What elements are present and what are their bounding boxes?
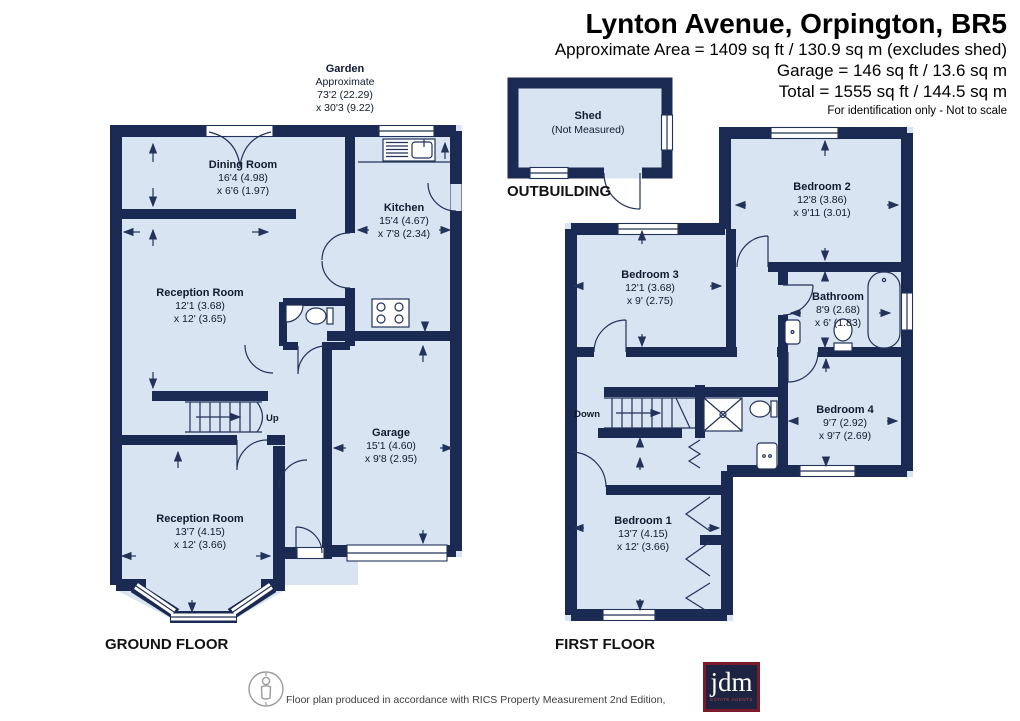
svg-text:Garden: Garden	[326, 63, 365, 75]
svg-text:15'1 (4.60): 15'1 (4.60)	[366, 440, 416, 452]
svg-text:x 12' (3.66): x 12' (3.66)	[174, 539, 226, 551]
svg-text:x 9' (2.75): x 9' (2.75)	[627, 295, 673, 307]
room-label: Reception Room	[156, 513, 244, 525]
room-garage: Garage 15'1 (4.60) x 9'8 (2.95)	[365, 427, 417, 465]
jdm-estate-agents-logo: jdm ESTATE AGENTS	[703, 662, 760, 712]
svg-text:13'7 (4.15): 13'7 (4.15)	[618, 528, 668, 540]
shower-room-toilet-icon	[750, 401, 777, 417]
room-label: Bedroom 4	[816, 404, 874, 416]
first-floor-plan: Down	[555, 127, 913, 653]
bathtub-icon	[868, 272, 900, 348]
garden-label: Garden Approximate 73'2 (22.29) x 30'3 (…	[316, 63, 375, 114]
svg-text:12'1 (3.68): 12'1 (3.68)	[625, 282, 675, 294]
svg-text:9'7 (2.92): 9'7 (2.92)	[823, 417, 867, 429]
svg-text:x 9'7 (2.69): x 9'7 (2.69)	[819, 430, 871, 442]
floorplan-page: Up	[0, 0, 1020, 721]
room-label: Kitchen	[384, 202, 425, 214]
svg-text:12'1 (3.68): 12'1 (3.68)	[175, 300, 225, 312]
shower-icon	[704, 398, 742, 431]
svg-text:x 7'8 (2.34): x 7'8 (2.34)	[378, 228, 430, 240]
hob-icon	[372, 299, 409, 327]
room-label: Bedroom 1	[614, 515, 671, 527]
ground-floor-plan: Up	[105, 63, 462, 653]
front-door	[297, 548, 324, 559]
total-line: Total = 1555 sq ft / 144.5 sq m	[555, 82, 1007, 103]
room-bedroom-3: Bedroom 3 12'1 (3.68) x 9' (2.75)	[621, 269, 678, 307]
svg-text:8'9 (2.68): 8'9 (2.68)	[816, 304, 860, 316]
area-line: Approximate Area = 1409 sq ft / 130.9 sq…	[555, 40, 1007, 61]
room-label: Reception Room	[156, 287, 244, 299]
bathroom-sink-icon	[785, 320, 800, 344]
svg-text:x 12' (3.65): x 12' (3.65)	[174, 313, 226, 325]
stairs-up-label: Up	[266, 413, 279, 424]
footer-line-1: Floor plan produced in accordance with R…	[286, 694, 761, 708]
room-bathroom: Bathroom 8'9 (2.68) x 6' (1.83)	[812, 291, 864, 329]
room-bedroom-2: Bedroom 2 12'8 (3.86) x 9'11 (3.01)	[793, 181, 850, 219]
svg-text:12'8 (3.86): 12'8 (3.86)	[797, 194, 847, 206]
room-label: Dining Room	[209, 159, 278, 171]
logo-text: jdm	[706, 667, 757, 697]
svg-text:x 9'8 (2.95): x 9'8 (2.95)	[365, 453, 417, 465]
room-label: Bathroom	[812, 291, 864, 303]
ground-floor-label: GROUND FLOOR	[105, 636, 228, 653]
shower-room-sink-icon	[757, 443, 777, 469]
header: Lynton Avenue, Orpington, BR5 Approximat…	[555, 8, 1007, 117]
room-label: Garage	[372, 427, 410, 439]
ground-floor-fill	[110, 125, 462, 618]
svg-text:x 30'3 (9.22): x 30'3 (9.22)	[316, 102, 374, 114]
svg-text:x 9'11 (3.01): x 9'11 (3.01)	[793, 207, 850, 219]
svg-text:x 12' (3.66): x 12' (3.66)	[617, 541, 669, 553]
outbuilding-label: OUTBUILDING	[507, 183, 611, 200]
room-bedroom-1: Bedroom 1 13'7 (4.15) x 12' (3.66)	[614, 515, 671, 553]
person-measure-icon	[246, 669, 286, 709]
room-kitchen: Kitchen 15'4 (4.67) x 7'8 (2.34)	[378, 202, 430, 240]
svg-text:(Not Measured): (Not Measured)	[552, 124, 625, 136]
svg-text:Approximate: Approximate	[316, 76, 375, 88]
identification-note: For identification only - Not to scale	[555, 105, 1007, 117]
room-dining: Dining Room 16'4 (4.98) x 6'6 (1.97)	[209, 159, 278, 197]
svg-text:16'4 (4.98): 16'4 (4.98)	[218, 172, 268, 184]
stairs-down-label: Down	[574, 409, 600, 420]
room-label: Bedroom 3	[621, 269, 678, 281]
page-title: Lynton Avenue, Orpington, BR5	[555, 8, 1007, 40]
first-floor-label: FIRST FLOOR	[555, 636, 655, 653]
garage-line: Garage = 146 sq ft / 13.6 sq m	[555, 61, 1007, 82]
svg-text:73'2 (22.29): 73'2 (22.29)	[317, 89, 373, 101]
svg-text:x 6' (1.83): x 6' (1.83)	[815, 317, 861, 329]
svg-text:x 6'6 (1.97): x 6'6 (1.97)	[217, 185, 269, 197]
svg-text:15'4 (4.67): 15'4 (4.67)	[379, 215, 429, 227]
logo-subtext: ESTATE AGENTS	[706, 697, 757, 703]
room-label: Bedroom 2	[793, 181, 850, 193]
wc-toilet-icon	[306, 308, 333, 324]
svg-text:13'7 (4.15): 13'7 (4.15)	[175, 526, 225, 538]
room-bedroom-4: Bedroom 4 9'7 (2.92) x 9'7 (2.69)	[816, 404, 874, 442]
footer-disclaimer: Floor plan produced in accordance with R…	[286, 667, 761, 721]
